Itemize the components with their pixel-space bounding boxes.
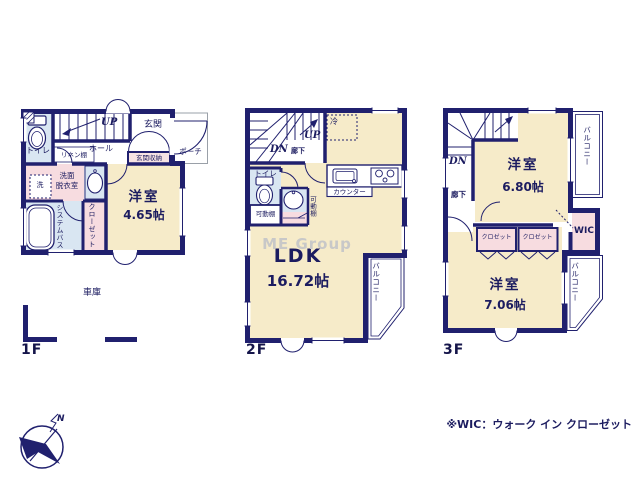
corridor-3f [448,140,473,232]
label-refrigerator: 冷 [330,117,338,126]
label-closet-right: クロゼット [519,235,556,242]
label-garage: 車庫 [74,288,110,298]
label-toilet-2f: トイレ [251,170,280,179]
label-movable-shelf-box: 可動棚 [250,211,281,218]
label-western-room-lower: 洋室 [475,278,535,294]
compass-north-label: N [57,414,65,424]
watermark: ME Group [262,236,352,253]
label-balcony-lower-3f: バルコニー [570,262,579,314]
label-counter: カウンター [327,189,372,196]
label-movable-shelf-vertical: 可動棚 [308,196,315,230]
label-floor-2f: 2F [246,342,267,358]
label-balcony-2f: バルコニー [371,262,380,314]
label-washroom-2: 脱衣室 [52,182,82,191]
label-wic: WIC [571,226,597,236]
entrance-storage-doors [129,132,170,153]
garage-marks [23,305,137,342]
label-closet-left: クロゼット [478,235,515,242]
label-floor-3f: 3F [443,342,464,358]
sink-icon-2f [284,191,303,209]
label-up-2f: UP [304,130,320,142]
label-toilet-1f: トイレ [24,146,52,155]
floorplan-2f [245,108,408,353]
label-dn-3f: DN [449,156,467,168]
shelf-pink-2f [281,212,308,225]
label-washer: 洗 [33,181,47,189]
label-western-room-upper-size: 6.80帖 [490,181,556,195]
stove-icon [371,168,398,184]
label-western-room-1f: 洋室 [114,190,174,206]
label-western-room-lower-size: 7.06帖 [472,299,538,313]
label-balcony-upper-3f: バルコニー [582,126,591,182]
sink-icon-1f [85,166,105,199]
label-western-room-size-1f: 4.65帖 [110,209,178,223]
stairs-arrow-1f [62,128,71,136]
label-corridor-3f: 廊下 [451,191,466,200]
label-system-bath: システムバス [56,204,64,251]
label-floor-1f: 1F [21,342,42,358]
label-entrance: 玄関 [134,120,172,130]
label-corridor-2f: 廊下 [291,147,305,155]
label-linen-shelf: リネン棚 [54,152,94,159]
label-washroom-1: 洗面 [52,172,82,181]
label-entrance-storage: 玄関収納 [128,155,170,162]
bathtub-icon [26,205,54,250]
label-up-1f: UP [101,117,117,129]
label-ldk-size: 16.72帖 [260,273,336,290]
label-porch: ポーチ [175,148,206,157]
label-western-room-upper: 洋室 [493,158,553,174]
label-closet-1f: クローゼット [88,203,96,252]
toilet-icon-2f [256,177,273,205]
floorplan-page: トイレ UP 玄関 ポーチ 玄関収納 ホール リネン棚 洗 洗面 脱衣室 システ… [0,0,640,480]
label-dn-2f: DN [270,144,288,156]
wic-footnote: ※WIC：ウォーク イン クローゼット [330,419,632,432]
